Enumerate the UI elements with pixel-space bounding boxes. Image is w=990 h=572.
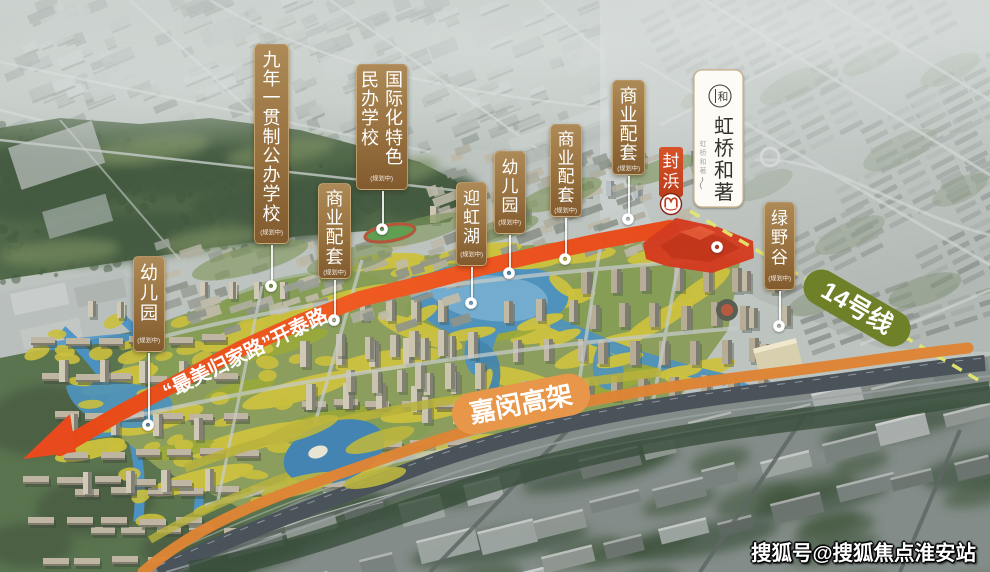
- svg-text:著: 著: [700, 166, 707, 175]
- svg-text:和: 和: [718, 91, 729, 103]
- svg-text:虹: 虹: [714, 115, 734, 138]
- svg-text:和: 和: [700, 157, 707, 166]
- svg-text:桥: 桥: [714, 137, 734, 160]
- svg-text:虹: 虹: [700, 139, 707, 148]
- svg-text:和: 和: [714, 159, 734, 182]
- svg-text:14号线: 14号线: [816, 276, 898, 340]
- svg-text:著: 著: [714, 181, 734, 204]
- svg-text:“最美归家路”开泰路: “最美归家路”开泰路: [159, 303, 332, 404]
- svg-text:桥: 桥: [700, 148, 707, 157]
